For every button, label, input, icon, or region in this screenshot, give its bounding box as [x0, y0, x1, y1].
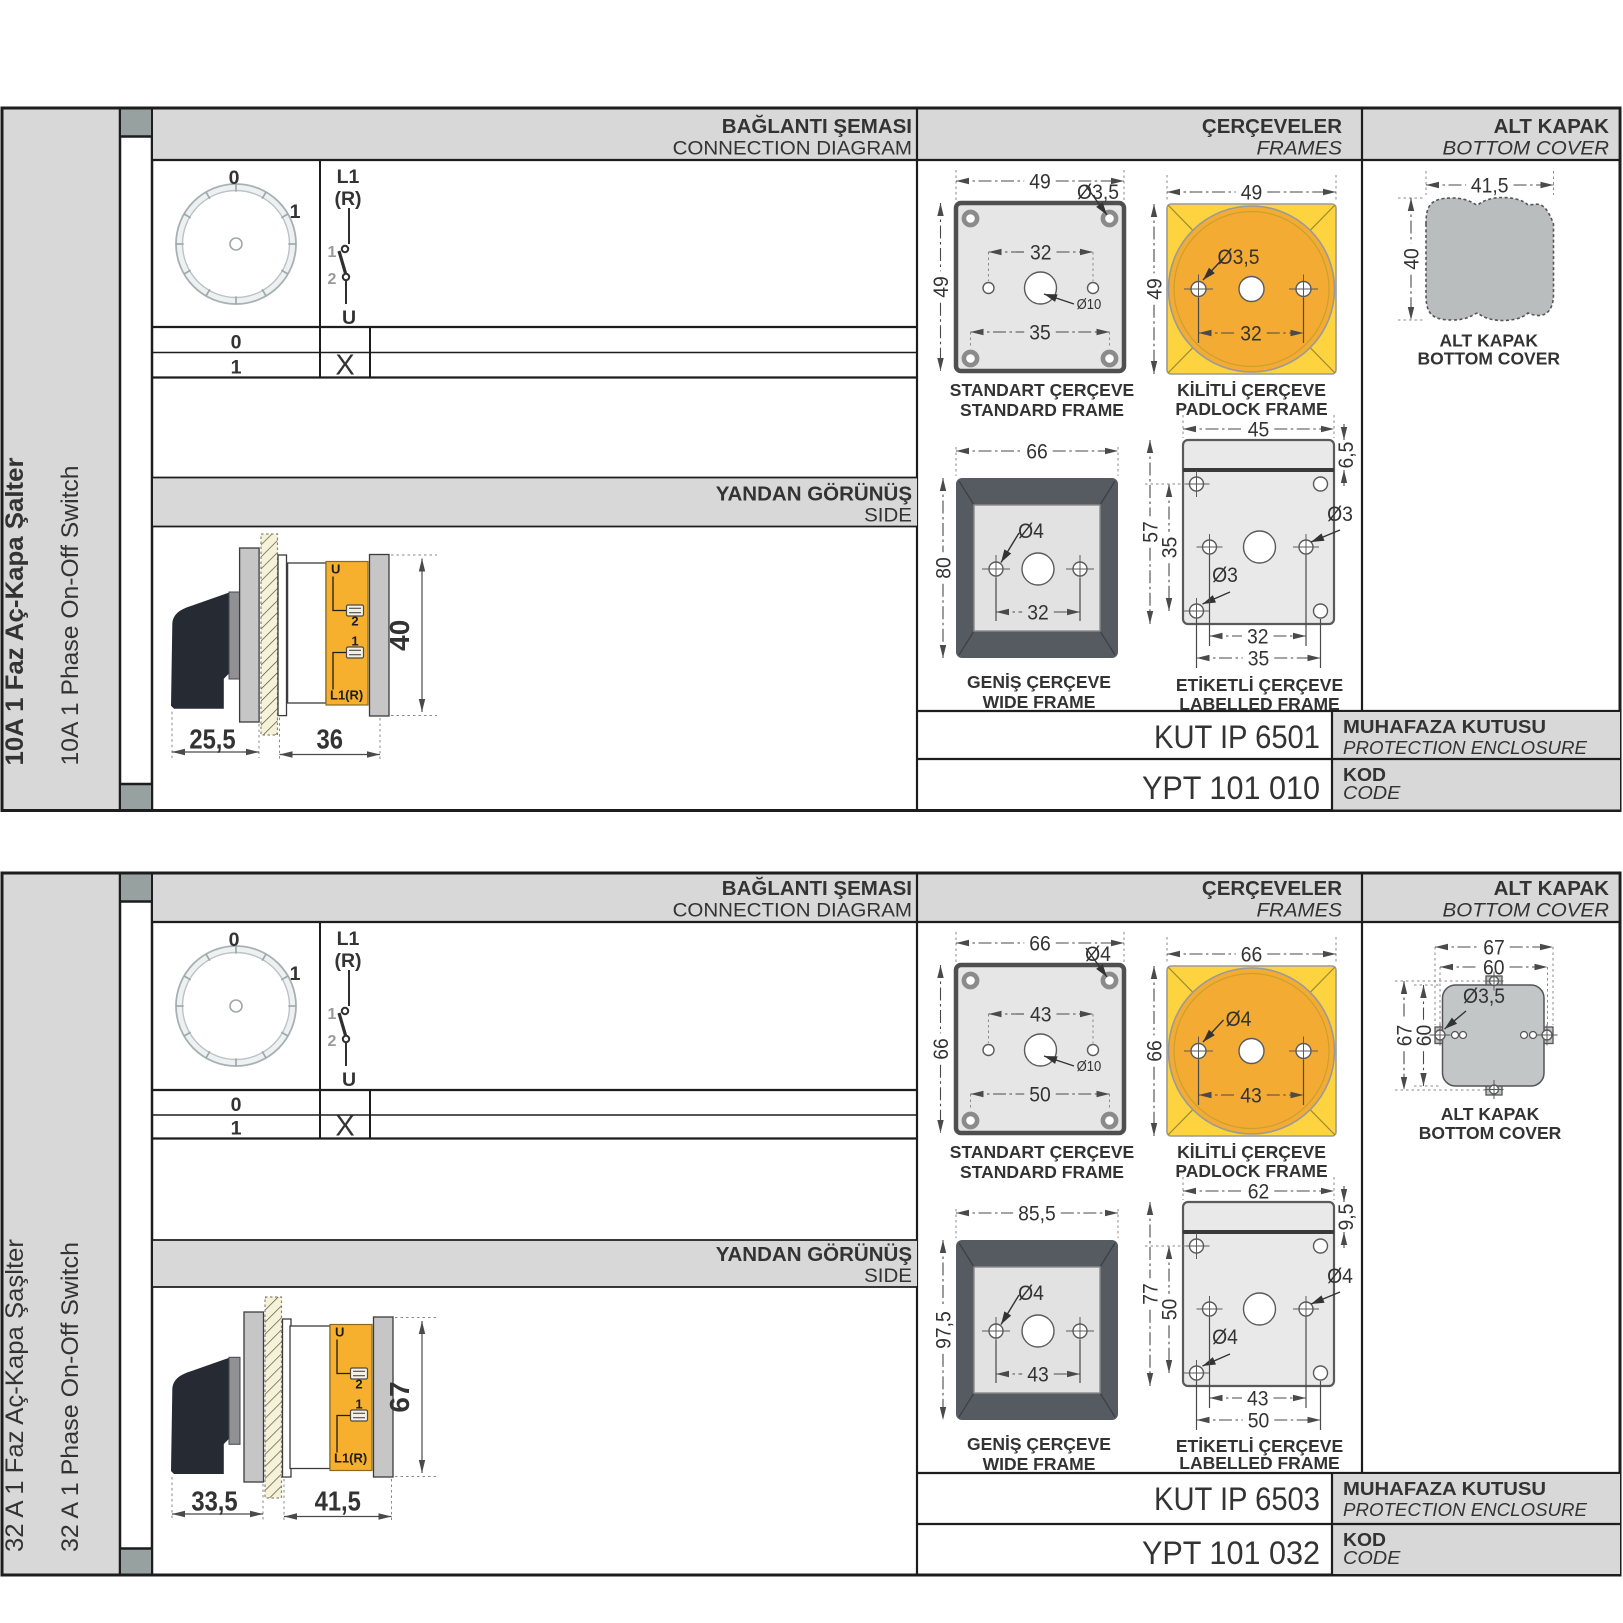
svg-text:BOTTOM COVER: BOTTOM COVER: [1419, 1123, 1562, 1143]
svg-text:YANDAN GÖRÜNÜŞ: YANDAN GÖRÜNÜŞ: [716, 483, 912, 506]
svg-text:ALT KAPAK: ALT KAPAK: [1494, 115, 1610, 138]
svg-text:1: 1: [290, 963, 301, 985]
svg-text:49: 49: [1241, 181, 1263, 205]
svg-text:WIDE FRAME: WIDE FRAME: [983, 692, 1096, 712]
svg-text:97,5: 97,5: [932, 1311, 956, 1349]
svg-text:LABELLED FRAME: LABELLED FRAME: [1179, 1453, 1339, 1473]
svg-text:X: X: [335, 350, 354, 382]
svg-text:(R): (R): [334, 950, 361, 972]
svg-text:50: 50: [1248, 1409, 1270, 1433]
svg-text:Ø3,5: Ø3,5: [1218, 245, 1260, 269]
svg-text:60: 60: [1483, 956, 1505, 980]
svg-text:2: 2: [328, 271, 337, 288]
svg-text:PADLOCK FRAME: PADLOCK FRAME: [1175, 399, 1327, 419]
svg-text:U: U: [342, 1069, 356, 1091]
svg-text:BAĞLANTI ŞEMASI: BAĞLANTI ŞEMASI: [722, 876, 912, 900]
svg-text:66: 66: [1026, 440, 1048, 464]
svg-text:GENİŞ ÇERÇEVE: GENİŞ ÇERÇEVE: [967, 672, 1111, 692]
svg-text:ALT KAPAK: ALT KAPAK: [1441, 1104, 1540, 1124]
svg-text:45: 45: [1248, 418, 1270, 442]
svg-text:9,5: 9,5: [1334, 1204, 1358, 1231]
svg-text:STANDART ÇERÇEVE: STANDART ÇERÇEVE: [950, 1142, 1134, 1162]
svg-text:Ø4: Ø4: [1085, 942, 1111, 966]
svg-text:BAĞLANTI ŞEMASI: BAĞLANTI ŞEMASI: [722, 114, 912, 138]
svg-text:1: 1: [231, 1118, 242, 1140]
svg-text:25,5: 25,5: [189, 724, 235, 755]
svg-text:0: 0: [231, 332, 242, 354]
svg-text:Ø3,5: Ø3,5: [1463, 984, 1505, 1008]
svg-text:ALT KAPAK: ALT KAPAK: [1439, 331, 1538, 351]
svg-text:Ø4: Ø4: [1018, 519, 1044, 543]
svg-text:0: 0: [229, 929, 240, 951]
svg-text:36: 36: [317, 724, 343, 755]
svg-text:1: 1: [328, 1006, 337, 1023]
svg-text:32 A 1 Phase On-Off Switch: 32 A 1 Phase On-Off Switch: [57, 1242, 84, 1552]
svg-text:10A 1 Phase On-Off Switch: 10A 1 Phase On-Off Switch: [57, 466, 84, 766]
svg-text:L1: L1: [337, 166, 360, 188]
svg-text:49: 49: [1029, 170, 1051, 194]
svg-text:KİLİTLİ ÇERÇEVE: KİLİTLİ ÇERÇEVE: [1177, 380, 1326, 400]
svg-text:40: 40: [1400, 248, 1424, 270]
svg-text:BOTTOM COVER: BOTTOM COVER: [1443, 901, 1610, 922]
svg-text:1: 1: [355, 1397, 362, 1412]
svg-text:Ø3,5: Ø3,5: [1077, 180, 1119, 204]
svg-text:32: 32: [1247, 625, 1269, 649]
svg-text:66: 66: [1029, 932, 1051, 956]
svg-text:PROTECTION ENCLOSURE: PROTECTION ENCLOSURE: [1343, 737, 1588, 758]
svg-text:0: 0: [231, 1094, 242, 1116]
svg-text:41,5: 41,5: [315, 1486, 361, 1517]
svg-text:Ø4: Ø4: [1018, 1281, 1044, 1305]
svg-text:BOTTOM COVER: BOTTOM COVER: [1443, 139, 1610, 160]
svg-text:L1(R): L1(R): [330, 688, 363, 703]
svg-text:L1: L1: [337, 928, 360, 950]
svg-text:2: 2: [355, 1377, 362, 1392]
svg-text:Ø4: Ø4: [1212, 1325, 1238, 1349]
svg-text:U: U: [331, 562, 340, 577]
svg-text:STANDART ÇERÇEVE: STANDART ÇERÇEVE: [950, 380, 1134, 400]
svg-text:Ø4: Ø4: [1327, 1264, 1353, 1288]
svg-text:L1(R): L1(R): [334, 1451, 367, 1466]
svg-text:35: 35: [1158, 537, 1182, 559]
svg-text:6,5: 6,5: [1334, 442, 1358, 469]
svg-text:Ø4: Ø4: [1226, 1007, 1252, 1031]
svg-text:85,5: 85,5: [1018, 1202, 1056, 1226]
svg-text:FRAMES: FRAMES: [1256, 139, 1342, 160]
svg-text:35: 35: [1029, 321, 1051, 345]
svg-text:49: 49: [1143, 278, 1167, 300]
svg-text:SIDE: SIDE: [864, 506, 912, 527]
svg-text:YPT 101 010: YPT 101 010: [1142, 770, 1320, 806]
svg-text:PROTECTION ENCLOSURE: PROTECTION ENCLOSURE: [1343, 1499, 1588, 1520]
svg-text:67: 67: [384, 1381, 415, 1412]
svg-text:49: 49: [929, 276, 953, 298]
svg-text:32 A 1 Faz Aç-Kapa Şaşlter: 32 A 1 Faz Aç-Kapa Şaşlter: [1, 1239, 29, 1552]
svg-text:43: 43: [1240, 1084, 1262, 1108]
svg-text:CODE: CODE: [1343, 1547, 1401, 1568]
svg-text:32: 32: [1027, 601, 1049, 625]
svg-text:66: 66: [929, 1038, 953, 1060]
svg-text:60: 60: [1412, 1025, 1436, 1047]
svg-text:10A 1 Faz Aç-Kapa Şalter: 10A 1 Faz Aç-Kapa Şalter: [1, 457, 29, 765]
svg-text:KİLİTLİ ÇERÇEVE: KİLİTLİ ÇERÇEVE: [1177, 1142, 1326, 1162]
svg-text:2: 2: [328, 1033, 337, 1050]
svg-text:1: 1: [351, 634, 358, 649]
svg-text:66: 66: [1241, 943, 1263, 967]
svg-text:43: 43: [1247, 1387, 1269, 1411]
svg-text:1: 1: [290, 201, 301, 223]
svg-text:33,5: 33,5: [191, 1486, 237, 1517]
svg-text:66: 66: [1143, 1040, 1167, 1062]
svg-text:Ø10: Ø10: [1077, 1059, 1102, 1075]
svg-text:43: 43: [1027, 1363, 1049, 1387]
svg-text:35: 35: [1248, 647, 1270, 671]
svg-text:1: 1: [231, 357, 242, 379]
svg-text:FRAMES: FRAMES: [1256, 901, 1342, 922]
svg-text:STANDARD FRAME: STANDARD FRAME: [960, 1162, 1124, 1182]
svg-text:Ø3: Ø3: [1212, 563, 1238, 587]
svg-text:PADLOCK FRAME: PADLOCK FRAME: [1175, 1161, 1327, 1181]
svg-text:41,5: 41,5: [1471, 174, 1509, 198]
svg-text:YPT 101 032: YPT 101 032: [1142, 1535, 1320, 1571]
svg-text:Ø10: Ø10: [1077, 297, 1102, 313]
svg-text:U: U: [342, 307, 356, 329]
svg-text:WIDE FRAME: WIDE FRAME: [983, 1454, 1096, 1474]
svg-text:ÇERÇEVELER: ÇERÇEVELER: [1202, 877, 1342, 900]
svg-text:(R): (R): [334, 188, 361, 210]
svg-text:32: 32: [1240, 322, 1262, 346]
svg-text:YANDAN GÖRÜNÜŞ: YANDAN GÖRÜNÜŞ: [716, 1243, 912, 1266]
svg-text:50: 50: [1029, 1083, 1051, 1107]
svg-text:CODE: CODE: [1343, 782, 1401, 803]
svg-text:SIDE: SIDE: [864, 1266, 912, 1287]
svg-text:X: X: [335, 1111, 354, 1143]
svg-text:CONNECTION DIAGRAM: CONNECTION DIAGRAM: [673, 901, 912, 922]
svg-text:BOTTOM COVER: BOTTOM COVER: [1417, 349, 1560, 369]
svg-text:STANDARD FRAME: STANDARD FRAME: [960, 400, 1124, 420]
svg-text:80: 80: [932, 557, 956, 579]
svg-text:MUHAFAZA KUTUSU: MUHAFAZA KUTUSU: [1343, 1478, 1546, 1499]
svg-text:Ø3: Ø3: [1327, 502, 1353, 526]
svg-text:CONNECTION DIAGRAM: CONNECTION DIAGRAM: [673, 139, 912, 160]
svg-text:40: 40: [384, 620, 415, 651]
svg-text:0: 0: [229, 167, 240, 189]
svg-text:ALT KAPAK: ALT KAPAK: [1494, 877, 1610, 900]
svg-text:32: 32: [1030, 241, 1052, 265]
svg-text:50: 50: [1158, 1299, 1182, 1321]
svg-text:2: 2: [351, 614, 358, 629]
svg-text:43: 43: [1030, 1003, 1052, 1027]
svg-text:ETİKETLİ ÇERÇEVE: ETİKETLİ ÇERÇEVE: [1176, 675, 1343, 695]
svg-text:MUHAFAZA KUTUSU: MUHAFAZA KUTUSU: [1343, 716, 1546, 737]
svg-text:62: 62: [1248, 1180, 1270, 1204]
svg-text:1: 1: [328, 244, 337, 261]
svg-text:GENİŞ ÇERÇEVE: GENİŞ ÇERÇEVE: [967, 1434, 1111, 1454]
svg-text:ÇERÇEVELER: ÇERÇEVELER: [1202, 115, 1342, 138]
svg-text:KUT IP 6503: KUT IP 6503: [1154, 1481, 1320, 1517]
svg-text:KUT IP 6501: KUT IP 6501: [1154, 719, 1320, 755]
svg-text:U: U: [335, 1325, 344, 1340]
